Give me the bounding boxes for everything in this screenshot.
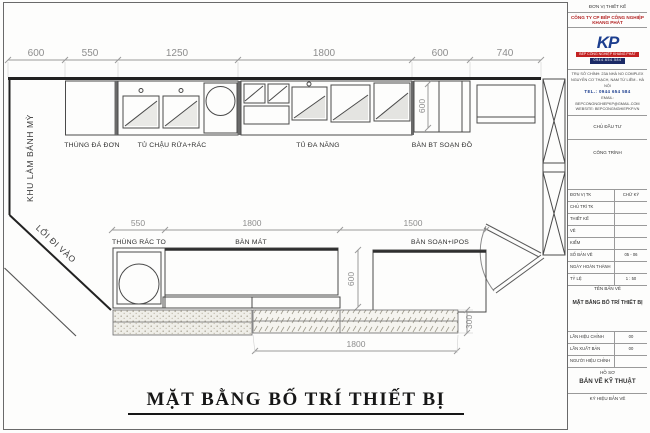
company-contact: TRỤ SỞ CHÍNH: 23A NHÀ NO COMPLEX NGUYỄN … <box>568 70 647 116</box>
dim-300: 300 <box>464 315 474 329</box>
bin-thung-rac-to <box>113 248 165 308</box>
svg-text:550: 550 <box>131 218 145 228</box>
area-label-banh-my: KHU LÀM BÁNH MỲ <box>25 114 35 202</box>
mid-dimension-chain <box>109 227 489 233</box>
company-name: CÔNG TY CP BẾP CÔNG NGHIỆP KHANG PHÁT <box>568 13 647 28</box>
tb-row-xuatban: LẦN XUẤT BẢN 00 <box>568 344 647 356</box>
website: WEBSITE: BEPCONGNGHIEPKP.VN <box>569 107 646 113</box>
row-value <box>615 214 647 225</box>
floor-strips <box>113 310 458 335</box>
drawing-code-label: KÝ HIỆU BẢN VẼ <box>568 394 647 430</box>
svg-text:BÀN MÁT: BÀN MÁT <box>235 237 267 246</box>
row-value <box>615 202 647 213</box>
speckled-strip <box>113 310 252 335</box>
floor-plan-svg: 600 550 1250 1800 600 740 KHU LÀM BÁNH M… <box>0 0 567 433</box>
divider <box>238 81 242 135</box>
diagonal-wall-inner <box>10 215 112 310</box>
dim-600-2: 600 <box>432 48 449 59</box>
dossier-cell: HỒ SƠ BẢN VẼ KỸ THUẬT <box>568 368 647 394</box>
phone-number: TEL.: 0944 654 584 <box>569 89 646 96</box>
top-counter <box>66 81 536 135</box>
dim-550: 550 <box>82 48 99 59</box>
round-bin <box>204 83 237 133</box>
project-label: CÔNG TRÌNH <box>568 140 647 190</box>
kp-logo-bar2: 0944.654.584 <box>590 58 626 64</box>
svg-text:TỦ CHẬU RỬA+RÁC: TỦ CHẬU RỬA+RÁC <box>138 140 207 149</box>
row-value: 00 <box>615 344 647 355</box>
svg-text:1800: 1800 <box>243 218 262 228</box>
row-value: 00 <box>615 332 647 343</box>
kp-logo-bar1: BẾP CÔNG NGHIỆP KHANG PHÁT <box>576 52 638 58</box>
sink-basin-1 <box>123 89 159 129</box>
svg-text:1500: 1500 <box>404 218 423 228</box>
table-ban-soan-ipos <box>373 250 486 312</box>
table-ban-mat <box>163 248 340 308</box>
svg-text:THÙNG ĐÁ ĐƠN: THÙNG ĐÁ ĐƠN <box>64 140 119 149</box>
tu-da-nang-trays <box>244 82 410 124</box>
right-door-column <box>543 79 565 255</box>
faucet-hole <box>179 89 183 93</box>
cabinet-thung-da-don <box>66 81 118 135</box>
mid-counter-labels: THÙNG RÁC TO BÀN MÁT BÀN SOẠN+IPOS <box>112 237 469 246</box>
tb-row-ngay: NGÀY HOÀN THÀNH <box>568 262 647 274</box>
dim-600-1: 600 <box>28 48 45 59</box>
sheet-title: MẶT BẰNG BỐ TRÍ THIẾT BỊ <box>128 389 464 415</box>
drawing-name-cell: TÊN BẢN VẼ MẶT BẰNG BỐ TRÍ THIẾT BỊ <box>568 286 647 332</box>
right-side-table <box>477 85 535 123</box>
tb-row-ve: VẼ <box>568 226 647 238</box>
company-logo: KP BẾP CÔNG NGHIỆP KHANG PHÁT 0944.654.5… <box>568 28 647 70</box>
svg-text:THÙNG RÁC TO: THÙNG RÁC TO <box>112 237 166 246</box>
dim-1800-bottom: 1800 <box>347 339 366 349</box>
top-dimension-labels: 600 550 1250 1800 600 740 <box>28 48 514 59</box>
row-value: CHỮ KÝ <box>615 190 647 201</box>
row-value <box>615 226 647 237</box>
tb-row-donvi: ĐƠN VỊ TK CHỮ KÝ <box>568 190 647 202</box>
drawing-name: MẶT BẰNG BỐ TRÍ THIẾT BỊ <box>568 300 647 307</box>
sink-basin-2 <box>163 89 199 129</box>
dim-1250: 1250 <box>166 48 189 59</box>
drawing-name-label: TÊN BẢN VẼ <box>568 286 647 292</box>
tb-row-chutri: CHỦ TRÌ TK <box>568 202 647 214</box>
row-label: THIẾT KẾ <box>568 214 615 225</box>
row-label: SỐ BẢN VẼ <box>568 250 615 261</box>
dim-600-depth-top: 600 <box>417 99 427 113</box>
email: EMAIL: BEPCONGNGHIEPKP@GMAIL.COM <box>569 96 646 107</box>
kp-logo-mark: KP <box>597 34 619 51</box>
dim-1800-top: 1800 <box>313 48 336 59</box>
svg-text:TỦ ĐA NĂNG: TỦ ĐA NĂNG <box>296 140 340 149</box>
row-value: 05 - 06 <box>615 250 647 261</box>
row-label: LẦN XUẤT BẢN <box>568 344 615 355</box>
door-swing <box>480 224 544 293</box>
tb-row-hieuchinh: LẦN HIỆU CHỈNH 00 <box>568 332 647 344</box>
mid-dimension-labels: 550 1800 1500 <box>131 218 423 228</box>
row-label: ĐƠN VỊ TK <box>568 190 615 201</box>
drawing-sheet: 600 550 1250 1800 600 740 KHU LÀM BÁNH M… <box>0 0 650 433</box>
tb-row-thietke: THIẾT KẾ <box>568 214 647 226</box>
client-label: CHỦ ĐẦU TƯ <box>568 116 647 140</box>
row-value <box>615 238 647 249</box>
dim-600-depth-mid: 600 <box>346 272 356 286</box>
address-line2: NGUYỄN CƠ THẠCH, NAM TỪ LIÊM - HÀ NỘI <box>569 78 646 89</box>
svg-text:BÀN BT SOẠN ĐỒ: BÀN BT SOẠN ĐỒ <box>412 139 472 149</box>
scale-value: 1 : 50 <box>615 274 647 285</box>
faucet-hole <box>139 89 143 93</box>
row-value <box>615 356 647 367</box>
row-label: NGÀY HOÀN THÀNH <box>568 262 615 273</box>
dossier-title: BẢN VẼ KỸ THUẬT <box>568 378 647 387</box>
row-label: CHỦ TRÌ TK <box>568 202 615 213</box>
mid-counter <box>113 248 486 312</box>
divider <box>115 81 119 135</box>
title-block: ĐƠN VỊ THIẾT KẾ CÔNG TY CP BẾP CÔNG NGHI… <box>567 2 647 430</box>
tb-row-kiem: KIỂM <box>568 238 647 250</box>
row-label: LẦN HIỆU CHỈNH <box>568 332 615 343</box>
dim-740: 740 <box>497 48 514 59</box>
row-label: TỶ LỆ <box>568 274 615 285</box>
tb-row-nguoihieuchinh: NGƯỜI HIỆU CHỈNH <box>568 356 647 368</box>
row-value <box>615 262 647 273</box>
dossier-label: HỒ SƠ <box>568 370 647 376</box>
tb-row-tyle: TỶ LỆ 1 : 50 <box>568 274 647 286</box>
hatched-strip <box>253 310 458 333</box>
row-label: VẼ <box>568 226 615 237</box>
row-label: KIỂM <box>568 238 615 249</box>
diagonal-wall-outer <box>5 268 77 336</box>
top-dimension-chain <box>5 57 544 79</box>
cabinet-tu-chau-rua <box>118 81 238 135</box>
svg-text:BÀN SOẠN+IPOS: BÀN SOẠN+IPOS <box>411 237 469 246</box>
top-counter-labels: THÙNG ĐÁ ĐƠN TỦ CHẬU RỬA+RÁC TỦ ĐA NĂNG … <box>64 139 472 149</box>
titleblock-header: ĐƠN VỊ THIẾT KẾ <box>568 2 647 13</box>
row-label: NGƯỜI HIỆU CHỈNH <box>568 356 615 367</box>
tb-row-sobanve: SỐ BẢN VẼ 05 - 06 <box>568 250 647 262</box>
